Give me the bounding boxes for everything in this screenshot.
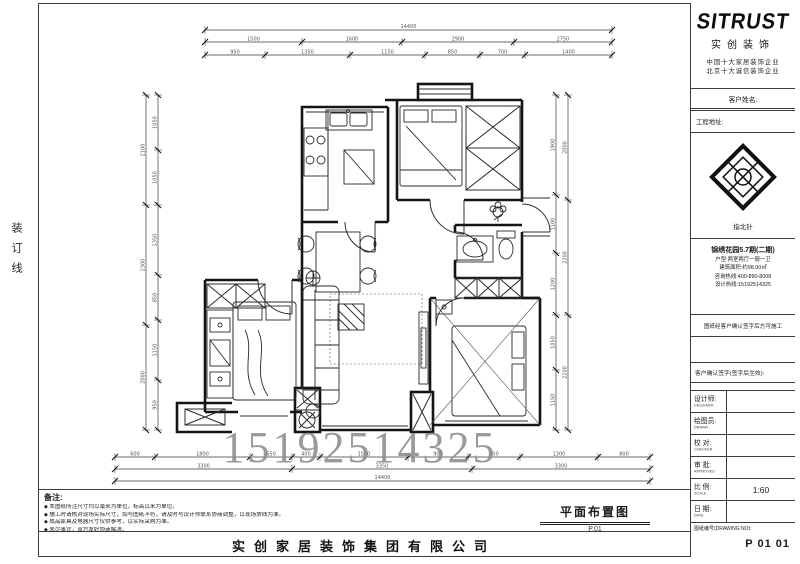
svg-text:2000: 2000	[141, 371, 147, 384]
scale-value: 1:60	[727, 479, 795, 500]
project-info: 锦绣花园5.7期(二期) 户型:两室两厅一厨一卫 建筑面积:约98.00㎡ 咨询…	[691, 239, 795, 315]
svg-text:14400: 14400	[401, 24, 417, 30]
svg-text:2900: 2900	[452, 37, 465, 43]
drawing-number: P 01 01	[745, 538, 790, 550]
svg-text:1050: 1050	[153, 116, 159, 129]
svg-text:2000: 2000	[563, 141, 569, 154]
svg-text:850: 850	[153, 293, 159, 303]
svg-text:2100: 2100	[141, 144, 147, 157]
logo-sitrust: SITRUST	[691, 10, 795, 35]
svg-text:950: 950	[153, 400, 159, 410]
field-value	[727, 413, 795, 434]
svg-text:800: 800	[619, 452, 629, 458]
field-label: 日 期:	[694, 503, 726, 513]
svg-text:14400: 14400	[375, 475, 391, 481]
svg-text:1150: 1150	[551, 394, 557, 407]
floor-plan-drawing: 1500160029002750950135011508507001400600…	[0, 0, 800, 564]
confirm-note-row: 图纸经客户确认签字后方可施工	[691, 315, 795, 337]
field-sublabel: DESIGNER	[694, 403, 723, 408]
svg-text:1350: 1350	[301, 50, 314, 56]
title-block: SITRUST 实创装饰 中国十大家居装饰企业 北京十大诚信装饰企业 客户姓名:…	[690, 3, 795, 557]
compass-caption: 指北针	[691, 221, 795, 231]
field-sublabel: APPROVED	[694, 469, 723, 474]
field-value	[727, 501, 795, 522]
customer-sign-row: 客户确认签字(签字后生效):	[691, 363, 795, 383]
svg-text:850: 850	[448, 50, 458, 56]
windows-and-openings	[185, 89, 550, 430]
svg-text:1150: 1150	[381, 50, 394, 56]
svg-text:600: 600	[130, 452, 140, 458]
slogan-line: 北京十大诚信装饰企业	[691, 67, 795, 76]
svg-text:1900: 1900	[551, 139, 557, 152]
field-designer: 设计师:DESIGNER	[691, 391, 795, 413]
logo-area: SITRUST 实创装饰	[691, 3, 795, 55]
svg-text:1200: 1200	[551, 278, 557, 291]
field-label: 设计师:	[694, 393, 726, 403]
ceiling-projection-lines	[430, 298, 540, 425]
customer-name-row: 客户姓名:	[691, 89, 795, 111]
compass-cell: 指北针	[691, 133, 795, 239]
drawing-sheet: 装订线	[0, 0, 800, 564]
walls	[177, 84, 540, 432]
project-info-line: 户型:两室两厅一厨一卫	[691, 256, 795, 264]
svg-text:700: 700	[498, 50, 508, 56]
note-item: 施工时请核对现场实际尺寸，如与图纸不符，请及时与设计师联系协商调整，以现场放线为…	[44, 512, 644, 520]
svg-text:1150: 1150	[153, 344, 159, 357]
north-compass-icon	[707, 141, 779, 213]
field-sublabel: CHECKER	[694, 447, 723, 452]
watermark-phone: 15192514325	[190, 422, 530, 473]
field-date: 日 期:DATE	[691, 501, 795, 523]
field-label: 审 批:	[694, 459, 726, 469]
field-label: 绘图员:	[694, 415, 726, 425]
field-approved: 审 批:APPROVED	[691, 457, 795, 479]
note-item: 本图纸所注尺寸均以毫米为单位，标高以米为单位。	[44, 504, 644, 512]
furniture	[207, 106, 526, 418]
svg-text:2200: 2200	[563, 251, 569, 264]
field-drawn: 绘图员:DRAWN	[691, 413, 795, 435]
signature-box	[691, 337, 795, 363]
project-address-row: 工程地址:	[691, 111, 795, 133]
note-item: 成品家具及电器尺寸仅供参考，以实际采购为准。	[44, 519, 644, 527]
svg-text:1500: 1500	[247, 37, 260, 43]
svg-text:1400: 1400	[562, 50, 575, 56]
notes-divider	[38, 489, 690, 490]
drawing-number-label: 图纸编号(DRAWING NO):	[694, 525, 752, 532]
notes-block: 备注: 本图纸所注尺寸均以毫米为单位，标高以米为单位。 施工时请核对现场实际尺寸…	[44, 492, 644, 534]
drawing-number-row: 图纸编号(DRAWING NO): P 01 01	[691, 523, 795, 553]
spacer-row	[691, 383, 795, 391]
slogan-line: 中国十大家居装饰企业	[691, 58, 795, 67]
svg-text:3300: 3300	[555, 464, 568, 470]
svg-text:1350: 1350	[153, 234, 159, 247]
project-info-line: 建筑面积:约98.00㎡	[691, 264, 795, 272]
wardrobes	[207, 106, 522, 308]
field-value	[727, 435, 795, 456]
svg-text:1050: 1050	[551, 336, 557, 349]
field-checker: 校 对:CHECKER	[691, 435, 795, 457]
project-name: 锦绣花园5.7期(二期)	[691, 245, 795, 256]
project-info-line: 咨询热线:400-890-8008	[691, 273, 795, 281]
svg-text:2300: 2300	[141, 259, 147, 272]
field-sublabel: DRAWN	[694, 425, 723, 430]
field-label: 比 例:	[694, 481, 726, 491]
notes-heading: 备注:	[44, 492, 644, 503]
company-name: 实创家居装饰集团有限公司	[38, 531, 690, 558]
field-value	[727, 457, 795, 478]
logo-chinese: 实创装饰	[691, 36, 795, 51]
svg-text:1300: 1300	[553, 452, 566, 458]
field-sublabel: DATE	[694, 513, 723, 518]
svg-text:1050: 1050	[153, 171, 159, 184]
svg-text:950: 950	[230, 50, 240, 56]
field-label: 校 对:	[694, 437, 726, 447]
svg-text:1100: 1100	[551, 218, 557, 231]
field-sublabel: SCALE	[694, 491, 723, 496]
dimension-lines: 1500160029002750950135011508507001400600…	[112, 24, 653, 485]
field-value	[727, 391, 795, 412]
svg-text:2750: 2750	[557, 37, 570, 43]
svg-text:1600: 1600	[346, 37, 359, 43]
project-info-line: 设计热线:15192514325	[691, 281, 795, 289]
slogan-area: 中国十大家居装饰企业 北京十大诚信装饰企业	[691, 55, 795, 89]
field-scale: 比 例:SCALE 1:60	[691, 479, 795, 501]
svg-text:2200: 2200	[563, 366, 569, 379]
